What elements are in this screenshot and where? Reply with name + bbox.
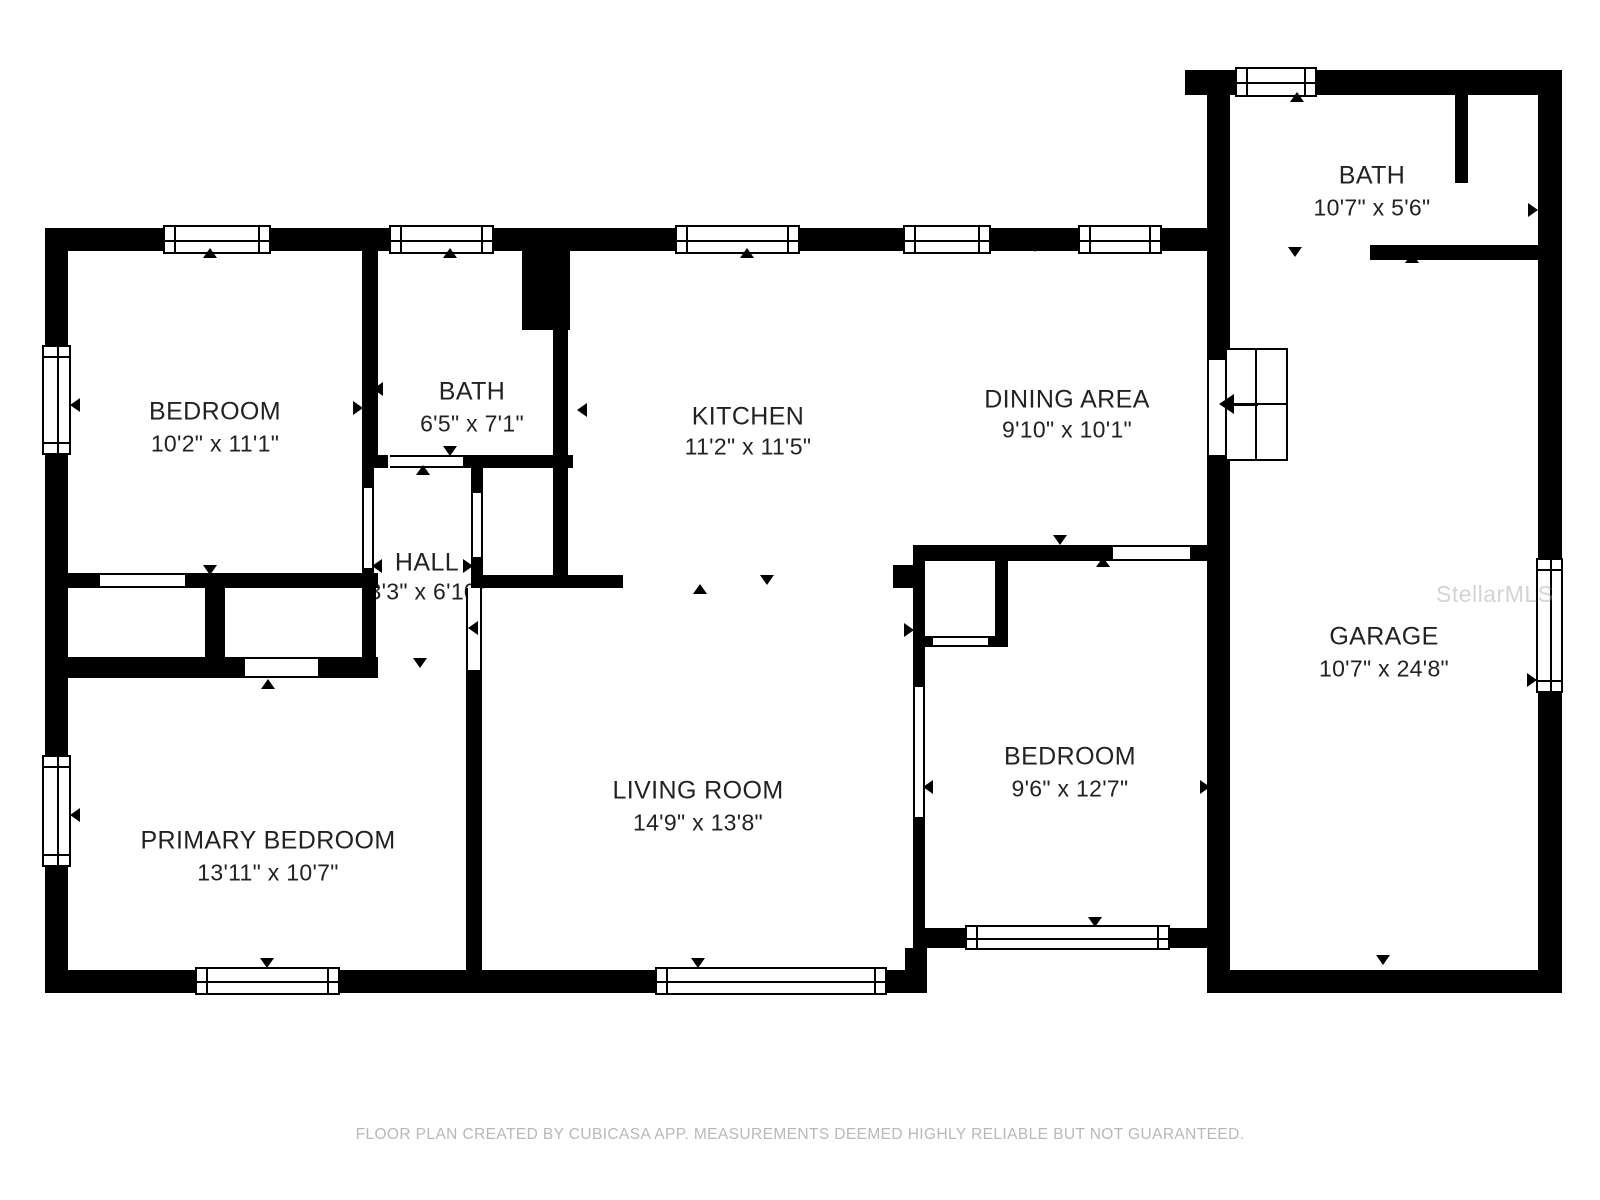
- direction-arrow-icon: [443, 248, 457, 258]
- direction-arrow-icon: [1290, 92, 1304, 102]
- room-dimensions: 14'9" x 13'8": [633, 810, 763, 837]
- door-opening: [913, 687, 925, 817]
- wall-segment: [1538, 70, 1562, 993]
- wall-segment: [362, 468, 374, 488]
- wall-segment: [45, 657, 245, 678]
- direction-arrow-icon: [1376, 955, 1390, 965]
- room-name: GARAGE: [1329, 623, 1438, 652]
- direction-arrow-icon: [1088, 917, 1102, 927]
- direction-arrow-icon: [203, 565, 217, 575]
- direction-arrow-icon: [470, 830, 480, 844]
- direction-arrow-icon: [70, 398, 80, 412]
- wall-segment: [466, 670, 482, 972]
- direction-arrow-icon: [904, 623, 914, 637]
- direction-arrow-icon: [923, 780, 933, 794]
- direction-arrow-icon: [468, 621, 478, 635]
- window: [1235, 67, 1317, 97]
- wall-segment: [362, 455, 388, 468]
- window: [195, 967, 340, 995]
- window: [42, 345, 71, 455]
- wall-segment: [205, 588, 225, 657]
- disclaimer-text: FLOOR PLAN CREATED BY CUBICASA APP. MEAS…: [0, 1126, 1600, 1144]
- door-opening: [245, 657, 318, 678]
- room-name: DINING AREA: [984, 386, 1150, 415]
- door-opening: [362, 488, 374, 568]
- direction-arrow-icon: [261, 679, 275, 689]
- wall-segment: [1190, 545, 1207, 561]
- room-name: BEDROOM: [149, 398, 281, 427]
- room-name: HALL: [395, 549, 459, 578]
- room-name: KITCHEN: [692, 403, 805, 432]
- room-dimensions: 9'6" x 12'7": [1012, 776, 1129, 803]
- door-arrow-shaft: [1230, 403, 1258, 406]
- direction-arrow-icon: [693, 584, 707, 594]
- window: [675, 225, 800, 254]
- room-dimensions: 13'11" x 10'7": [197, 860, 338, 887]
- room-name: BEDROOM: [1004, 743, 1136, 772]
- wall-segment: [362, 251, 378, 467]
- direction-arrow-icon: [70, 808, 80, 822]
- room-dimensions: 11'2" x 11'5": [685, 434, 812, 461]
- direction-arrow-icon: [1527, 673, 1537, 687]
- room-name: BATH: [439, 378, 505, 407]
- direction-arrow-icon: [353, 401, 363, 415]
- door-opening: [100, 573, 185, 588]
- watermark-text: StellarMLS: [1436, 581, 1553, 608]
- window: [965, 925, 1170, 950]
- window: [1078, 225, 1162, 254]
- room-name: LIVING ROOM: [612, 777, 783, 806]
- direction-arrow-icon: [1028, 242, 1042, 252]
- wall-segment: [185, 573, 378, 588]
- window: [42, 755, 71, 867]
- direction-arrow-icon: [416, 465, 430, 475]
- direction-arrow-icon: [555, 382, 565, 396]
- wall-segment: [1207, 455, 1230, 993]
- direction-arrow-icon: [740, 248, 754, 258]
- direction-arrow-icon: [373, 382, 383, 396]
- direction-arrow-icon: [1053, 535, 1067, 545]
- window: [163, 225, 271, 254]
- direction-arrow-icon: [1200, 780, 1210, 794]
- wall-segment: [913, 545, 1113, 561]
- direction-arrow-icon: [1219, 394, 1234, 414]
- wall-segment: [45, 573, 100, 588]
- room-dimensions: 9'10" x 10'1": [1002, 417, 1132, 444]
- room-dimensions: 10'7" x 24'8": [1319, 656, 1449, 683]
- direction-arrow-icon: [260, 958, 274, 968]
- door-opening: [471, 493, 483, 557]
- wall-segment: [471, 468, 483, 493]
- room-name: BATH: [1339, 162, 1405, 191]
- window: [903, 225, 991, 254]
- window: [389, 225, 494, 254]
- room-name: PRIMARY BEDROOM: [140, 827, 395, 856]
- wall-segment: [913, 561, 925, 687]
- wall-segment: [1207, 970, 1562, 993]
- wall-segment: [472, 575, 623, 588]
- wall-segment: [925, 636, 933, 647]
- wall-segment: [905, 948, 927, 993]
- wall-segment: [893, 565, 913, 588]
- direction-arrow-icon: [760, 575, 774, 585]
- direction-arrow-icon: [1288, 247, 1302, 257]
- direction-arrow-icon: [203, 248, 217, 258]
- wall-segment: [913, 817, 925, 928]
- door-opening: [933, 636, 988, 647]
- direction-arrow-icon: [691, 958, 705, 968]
- wall-segment: [45, 228, 68, 993]
- direction-arrow-icon: [1528, 203, 1538, 217]
- direction-arrow-icon: [443, 446, 457, 456]
- window: [655, 967, 887, 995]
- wall-segment: [995, 561, 1008, 647]
- direction-arrow-icon: [413, 658, 427, 668]
- window: [1536, 558, 1563, 693]
- direction-arrow-icon: [1405, 253, 1419, 263]
- floor-plan: FLOOR PLAN CREATED BY CUBICASA APP. MEAS…: [0, 0, 1600, 1200]
- wall-segment: [1370, 245, 1538, 260]
- room-dimensions: 10'7" x 5'6": [1314, 195, 1431, 222]
- direction-arrow-icon: [577, 403, 587, 417]
- room-dimensions: 6'5" x 7'1": [420, 411, 524, 438]
- direction-arrow-icon: [463, 559, 473, 573]
- direction-arrow-icon: [1096, 557, 1110, 567]
- wall-segment: [522, 245, 570, 330]
- room-dimensions: 10'2" x 11'1": [151, 431, 279, 458]
- direction-arrow-icon: [372, 559, 382, 573]
- door-opening: [1113, 545, 1190, 561]
- wall-segment: [553, 330, 568, 575]
- wall-segment: [362, 588, 376, 672]
- wall-segment: [988, 636, 1008, 647]
- wall-segment: [1455, 95, 1468, 183]
- direction-arrow-icon: [1217, 205, 1227, 219]
